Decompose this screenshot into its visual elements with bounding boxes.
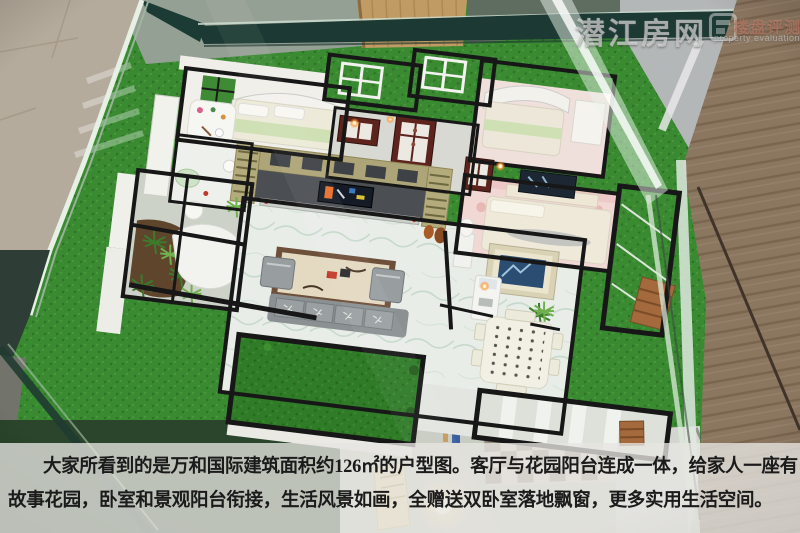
caption-band: 大家所看到的是万和国际建筑面积约126㎡的户型图。客厅与花园阳台连成一体，给家人… [0, 443, 800, 533]
caption-line-1: 大家所看到的是万和国际建筑面积约126㎡的户型图。客厅与花园阳台连成一体，给家人… [43, 452, 798, 478]
watermark-section-en: property evaluation [714, 33, 800, 43]
photo-stage: 潜江房网 楼盘评测 property evaluation 大家所看到的是万和国… [0, 0, 800, 533]
watermark: 潜江房网 楼盘评测 property evaluation [0, 0, 800, 60]
watermark-site-name: 潜江房网 [575, 9, 707, 53]
caption-line-2: 故事花园，卧室和景观阳台衔接，生活风景如画，全赠送双卧室落地飘窗，更多实用生活空… [8, 486, 772, 512]
